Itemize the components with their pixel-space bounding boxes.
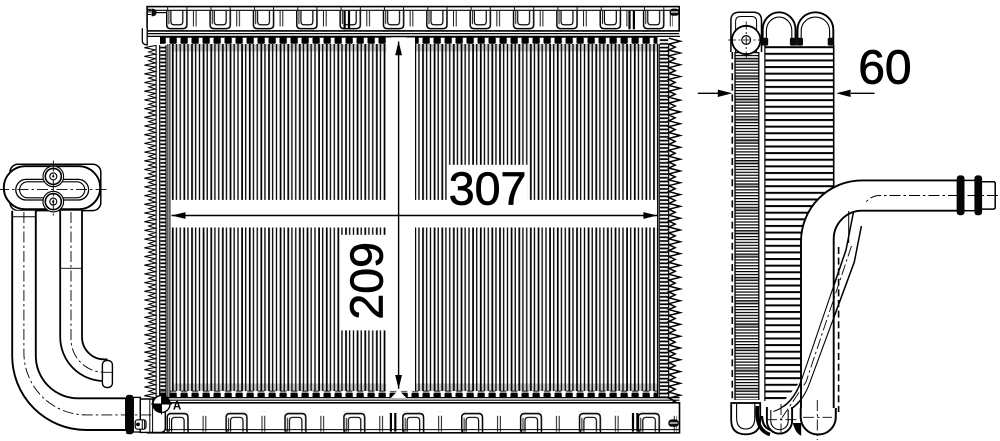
svg-text:A: A — [173, 400, 181, 412]
svg-text:60: 60 — [858, 41, 911, 94]
svg-text:307: 307 — [449, 162, 527, 214]
svg-text:209: 209 — [341, 242, 393, 320]
